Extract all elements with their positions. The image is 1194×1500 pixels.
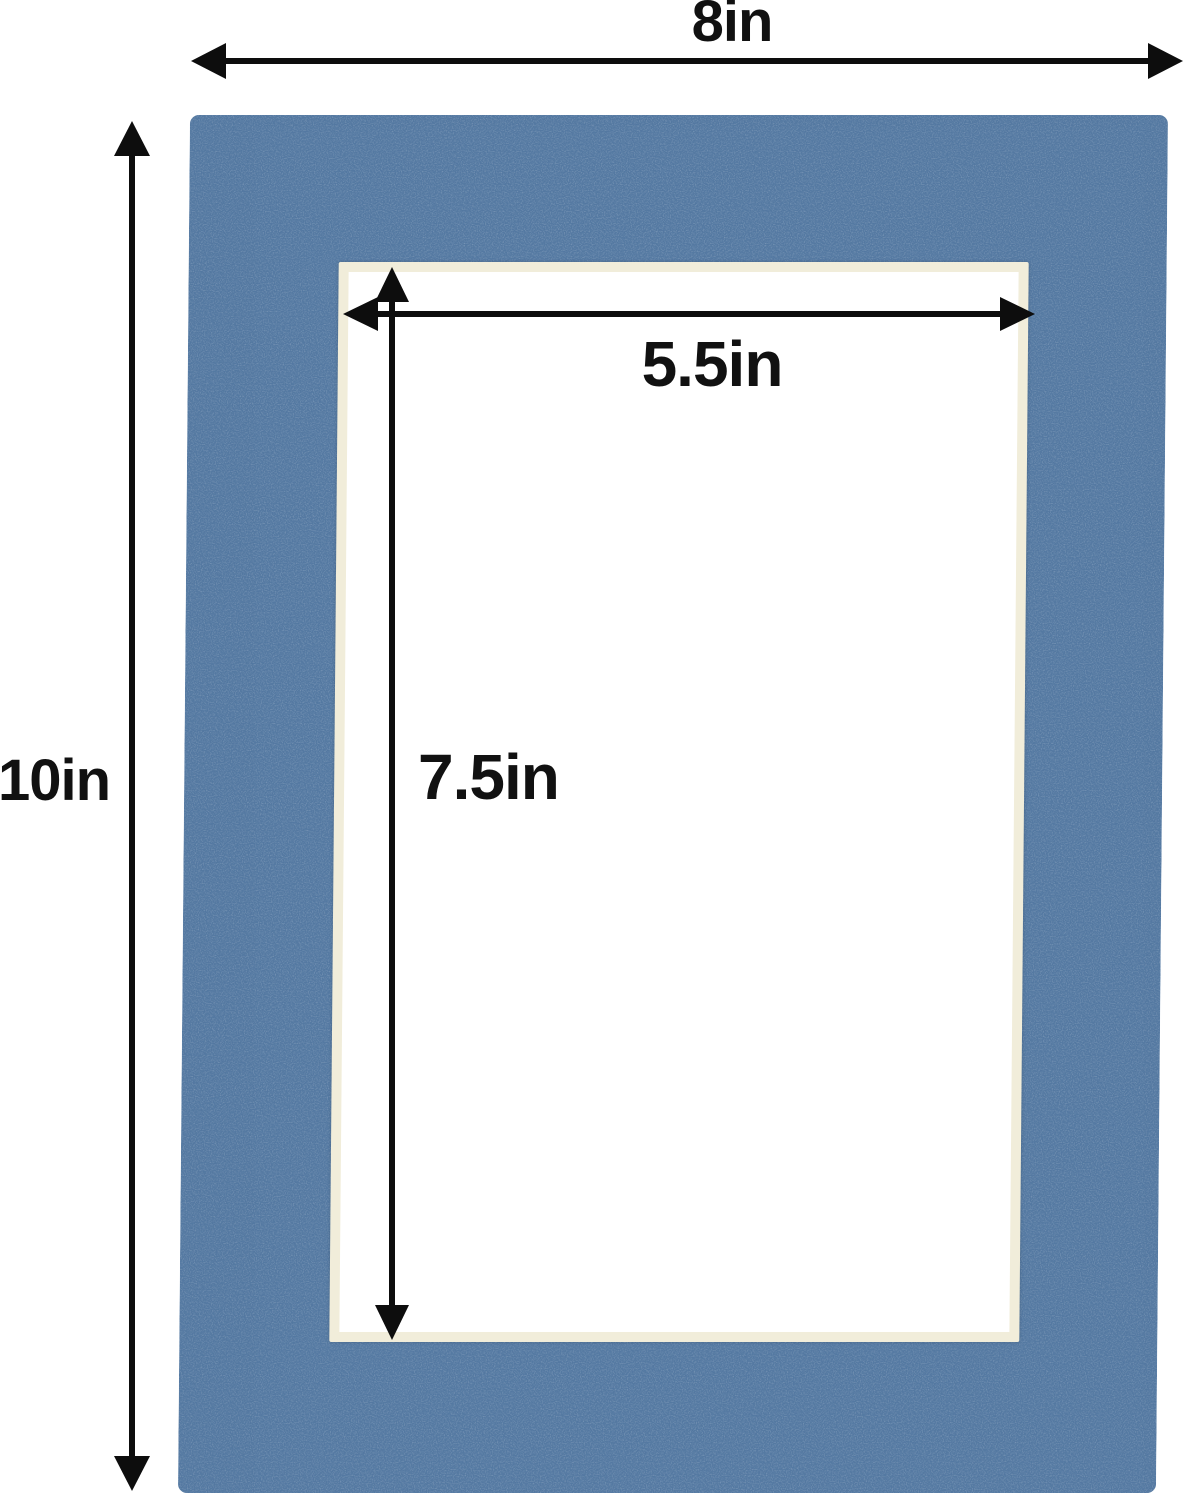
product-dimension-diagram: 8in 10in 5.5in 7.5in <box>0 0 1194 1500</box>
opening-height-label: 7.5in <box>418 742 559 812</box>
outer-height-arrow <box>114 121 150 1491</box>
outer-width-label: 8in <box>592 0 872 54</box>
opening-width-label: 5.5in <box>572 329 852 399</box>
outer-height-label: 10in <box>0 749 110 813</box>
mat-board <box>178 115 1168 1493</box>
